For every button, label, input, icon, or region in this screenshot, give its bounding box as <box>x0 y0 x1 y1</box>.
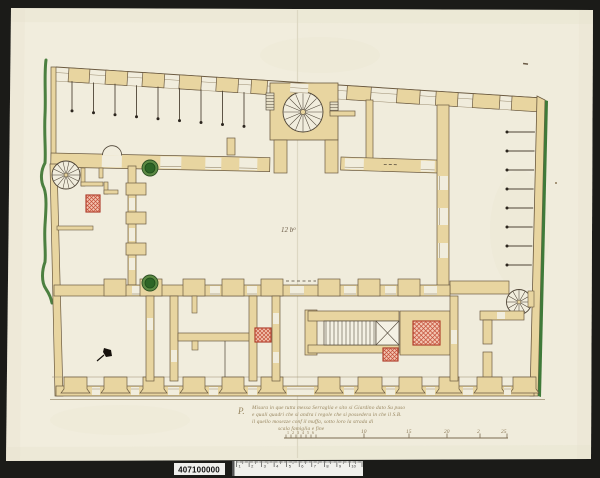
svg-text:15: 15 <box>406 429 412 435</box>
svg-text:Misura in que tutta messa Serr: Misura in que tutta messa Serraglia e si… <box>251 405 405 411</box>
svg-text:6: 6 <box>312 430 314 435</box>
svg-text:5: 5 <box>307 430 309 435</box>
svg-text:25: 25 <box>501 429 507 435</box>
svg-text:1: 1 <box>287 430 289 435</box>
svg-text:2: 2 <box>477 429 480 435</box>
svg-text:3: 3 <box>297 430 299 435</box>
svg-text:20: 20 <box>444 429 450 435</box>
svg-text:e quali quadri che si andra i: e quali quadri che si andra i regole che… <box>252 412 402 418</box>
svg-text:il quello mosezze conf il muff: il quello mosezze conf il muffa, sotto l… <box>252 418 374 425</box>
svg-text:10: 10 <box>351 464 356 469</box>
svg-text:2: 2 <box>292 430 294 435</box>
svg-text:10: 10 <box>361 429 367 435</box>
svg-text:P.: P. <box>237 406 245 416</box>
svg-text:407100000: 407100000 <box>178 466 220 475</box>
svg-text:4: 4 <box>302 430 304 435</box>
